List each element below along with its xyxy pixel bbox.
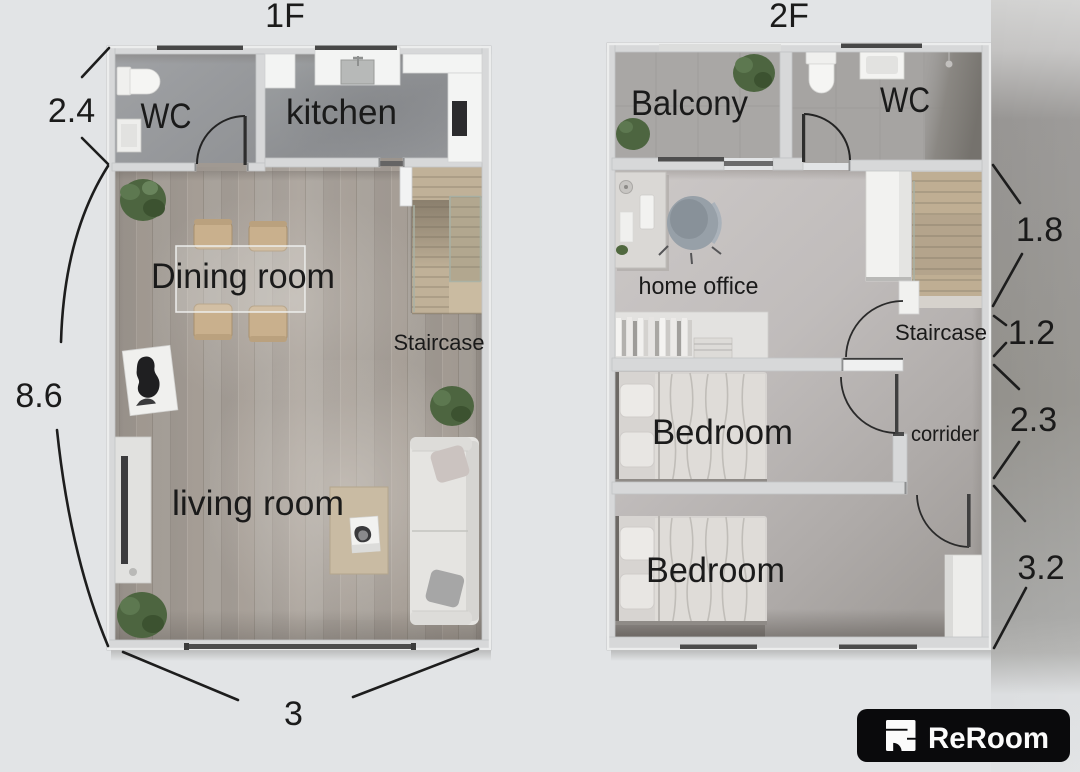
svg-text:ReRoom: ReRoom xyxy=(928,722,1049,755)
svg-text:Balcony: Balcony xyxy=(631,84,748,123)
svg-text:kitchen: kitchen xyxy=(286,93,397,132)
svg-text:Bedroom: Bedroom xyxy=(652,413,793,452)
svg-text:WC: WC xyxy=(880,81,930,120)
svg-text:WC: WC xyxy=(141,97,192,136)
svg-text:Staircase: Staircase xyxy=(895,320,987,345)
svg-text:1.8: 1.8 xyxy=(1016,211,1063,249)
svg-text:Staircase: Staircase xyxy=(394,330,485,355)
svg-text:Dining room: Dining room xyxy=(151,257,335,296)
svg-text:3.2: 3.2 xyxy=(1017,549,1064,587)
svg-text:2F: 2F xyxy=(769,0,809,35)
svg-text:2.3: 2.3 xyxy=(1010,401,1057,439)
svg-text:3: 3 xyxy=(284,695,303,733)
svg-text:1F: 1F xyxy=(265,0,305,35)
svg-text:living room: living room xyxy=(172,484,344,523)
svg-text:1.2: 1.2 xyxy=(1008,314,1055,352)
svg-text:8.6: 8.6 xyxy=(15,377,62,415)
svg-text:2.4: 2.4 xyxy=(48,92,95,130)
svg-text:home office: home office xyxy=(639,273,759,300)
svg-text:corrider: corrider xyxy=(911,423,979,446)
svg-text:Bedroom: Bedroom xyxy=(646,551,785,590)
